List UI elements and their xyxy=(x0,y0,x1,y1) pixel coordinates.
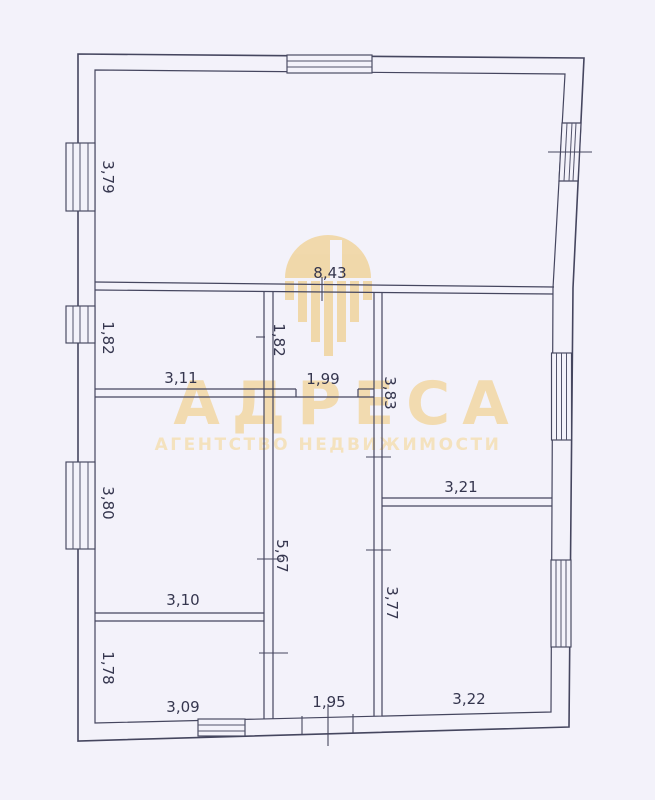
window-left-top xyxy=(66,143,95,211)
dim-label-5-67: 5,67 xyxy=(273,539,291,572)
window-top xyxy=(287,55,372,73)
dim-label-3-79: 3,79 xyxy=(99,160,117,193)
window-bottom xyxy=(198,719,245,736)
floor-plan-page: АДРЕСА АГЕНТСТВО НЕДВИЖИМОСТИ xyxy=(0,0,655,800)
window-left-bottom xyxy=(66,462,95,549)
window-left-middle xyxy=(66,306,95,343)
dim-label-3-10: 3,10 xyxy=(166,591,199,609)
dim-label-1-95: 1,95 xyxy=(312,693,345,711)
watermark-tagline-text: АГЕНТСТВО НЕДВИЖИМОСТИ xyxy=(155,435,502,455)
dim-label-8-43: 8,43 xyxy=(313,264,346,282)
window-right-middle xyxy=(552,353,572,440)
floor-plan: АДРЕСА АГЕНТСТВО НЕДВИЖИМОСТИ xyxy=(0,0,655,800)
dim-label-1-82-left: 1,82 xyxy=(99,321,117,354)
dim-label-1-78: 1,78 xyxy=(99,651,117,684)
dim-label-1-82-mid: 1,82 xyxy=(270,323,288,356)
dim-label-3-83: 3,83 xyxy=(381,376,399,409)
dim-label-3-09: 3,09 xyxy=(166,698,199,716)
dim-label-3-11: 3,11 xyxy=(164,369,197,387)
dim-label-3-21: 3,21 xyxy=(444,478,477,496)
dim-label-1-99: 1,99 xyxy=(306,370,339,388)
window-right-bottom xyxy=(551,560,571,647)
watermark-brand-text: АДРЕСА xyxy=(173,369,520,439)
dim-label-3-80: 3,80 xyxy=(99,486,117,519)
dim-label-3-77: 3,77 xyxy=(383,586,401,619)
dim-label-3-22: 3,22 xyxy=(452,690,485,708)
